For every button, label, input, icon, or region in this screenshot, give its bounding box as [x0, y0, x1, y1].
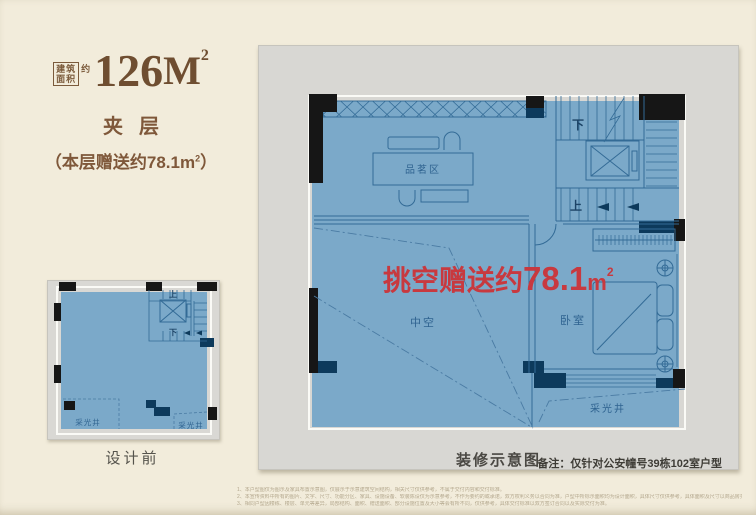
- bonus-prefix: （本层赠送约: [45, 153, 147, 172]
- tea-room-label: 品茗区: [405, 164, 441, 176]
- before-plan-caption: 设计前: [47, 447, 218, 468]
- remark-note: 备注：仅针对公安幢号39栋102室户型: [537, 455, 722, 471]
- lightwell-left-label: 采光井: [75, 417, 101, 427]
- bonus-highlight: 挑空赠送约78.1m2: [383, 260, 614, 297]
- floor-area: [61, 292, 207, 429]
- disclaimer-line-3: 3、相同户型因楼栋、楼层、单元等差异，局部结构、面积、赠送面积、部分设施位置及大…: [237, 501, 742, 508]
- highlight-prefix: 挑空赠送约: [383, 264, 523, 296]
- disclaimer-line-2: 2、本宣传资料中所有的图片、文字、尺寸、功能分区、家具、设施设备、软装陈设仅为示…: [237, 494, 742, 501]
- area-headline: 建筑 面积 约 126 M 2: [0, 48, 262, 94]
- highlight-value: 78.1: [523, 260, 587, 297]
- lightwell-label: 采光井: [590, 402, 626, 415]
- void-label: 中空: [410, 315, 436, 329]
- disclaimer-line-1: 1、本户型图仅为图示及家具布置示意图，仅展示于示意建筑空间结构，相关尺寸仅供参考…: [237, 487, 742, 494]
- left-column: 建筑 面积 约 126 M 2 夹层 （本层赠送约78.1m2）: [0, 0, 262, 515]
- before-plan-panel: 上 下 采光井 采光井: [47, 280, 220, 440]
- lightwell-right-label: 采光井: [178, 420, 204, 430]
- before-floorplan: 上 下 采光井 采光井: [48, 281, 219, 439]
- floorplan-flyer: 建筑 面积 约 126 M 2 夹层 （本层赠送约78.1m2）: [0, 0, 756, 515]
- bedroom-label: 卧室: [560, 313, 586, 327]
- bonus-note: （本层赠送约78.1m2）: [0, 148, 262, 173]
- bonus-suffix: ）: [200, 153, 217, 172]
- area-badge: 建筑 面积 约: [53, 62, 90, 86]
- down-label: 下: [572, 118, 584, 132]
- badge-line1: 建筑: [56, 64, 76, 74]
- highlight-sup: 2: [607, 265, 614, 279]
- legal-disclaimer: 1、本户型图仅为图示及家具布置示意图，仅展示于示意建筑空间结构，相关尺寸仅供参考…: [237, 487, 742, 508]
- after-plan-panel: 下 上 品茗区: [258, 45, 739, 470]
- area-superscript: 2: [201, 47, 209, 65]
- area-value: 126: [94, 48, 163, 94]
- up-label: 上: [169, 289, 177, 299]
- badge-line2: 面积: [56, 74, 76, 84]
- after-floorplan: 下 上 品茗区: [299, 92, 689, 437]
- floor-name: 夹层: [0, 110, 262, 139]
- highlight-unit: m: [587, 270, 607, 295]
- up-label: 上: [570, 198, 582, 213]
- area-badge-box: 建筑 面积: [53, 62, 79, 86]
- area-unit: M: [163, 51, 201, 91]
- bonus-unit: m: [180, 153, 195, 172]
- railing-hatch: [323, 101, 546, 117]
- badge-approx: 约: [81, 62, 90, 75]
- bonus-value: 78.1: [147, 153, 180, 172]
- down-label: 下: [169, 328, 177, 337]
